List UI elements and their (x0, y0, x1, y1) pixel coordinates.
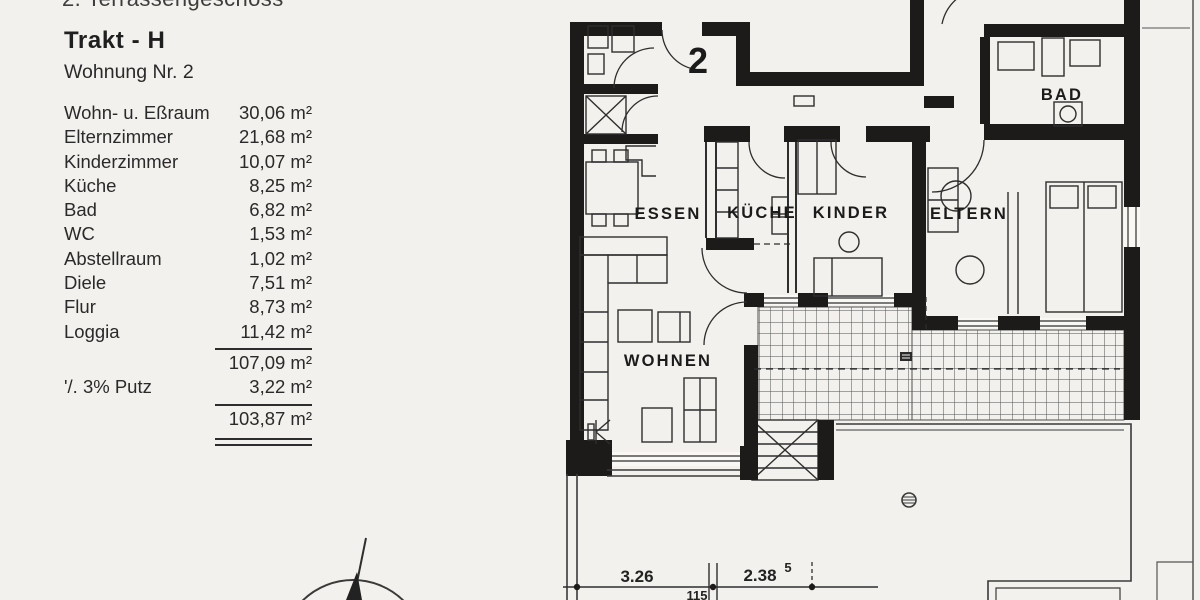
dimension-right: 2.38 (743, 566, 776, 585)
room-label-kinder: KINDER (813, 204, 889, 222)
room-label-eltern: ELTERN (930, 205, 1008, 223)
room-label-bad: BAD (1041, 86, 1083, 104)
room-label-wohnen: WOHNEN (624, 352, 712, 370)
neighbour-lines (1142, 0, 1193, 600)
dimension-left: 3.26 (620, 567, 653, 586)
room-label-kueche: KÜCHE (727, 203, 797, 222)
dimension-right-sup: 5 (784, 560, 791, 575)
dimension-line: 3.26 2.38 5 115 (563, 560, 878, 600)
exterior-stair (752, 420, 818, 480)
room-label-essen: ESSEN (635, 205, 702, 223)
dimension-small: 115 (687, 588, 708, 600)
floor-plan-svg: 3.26 2.38 5 115 2 ESSEN KÜCHE KINDER ELT… (0, 0, 1200, 600)
apartment-number-label: 2 (688, 40, 708, 81)
north-compass (281, 538, 425, 600)
